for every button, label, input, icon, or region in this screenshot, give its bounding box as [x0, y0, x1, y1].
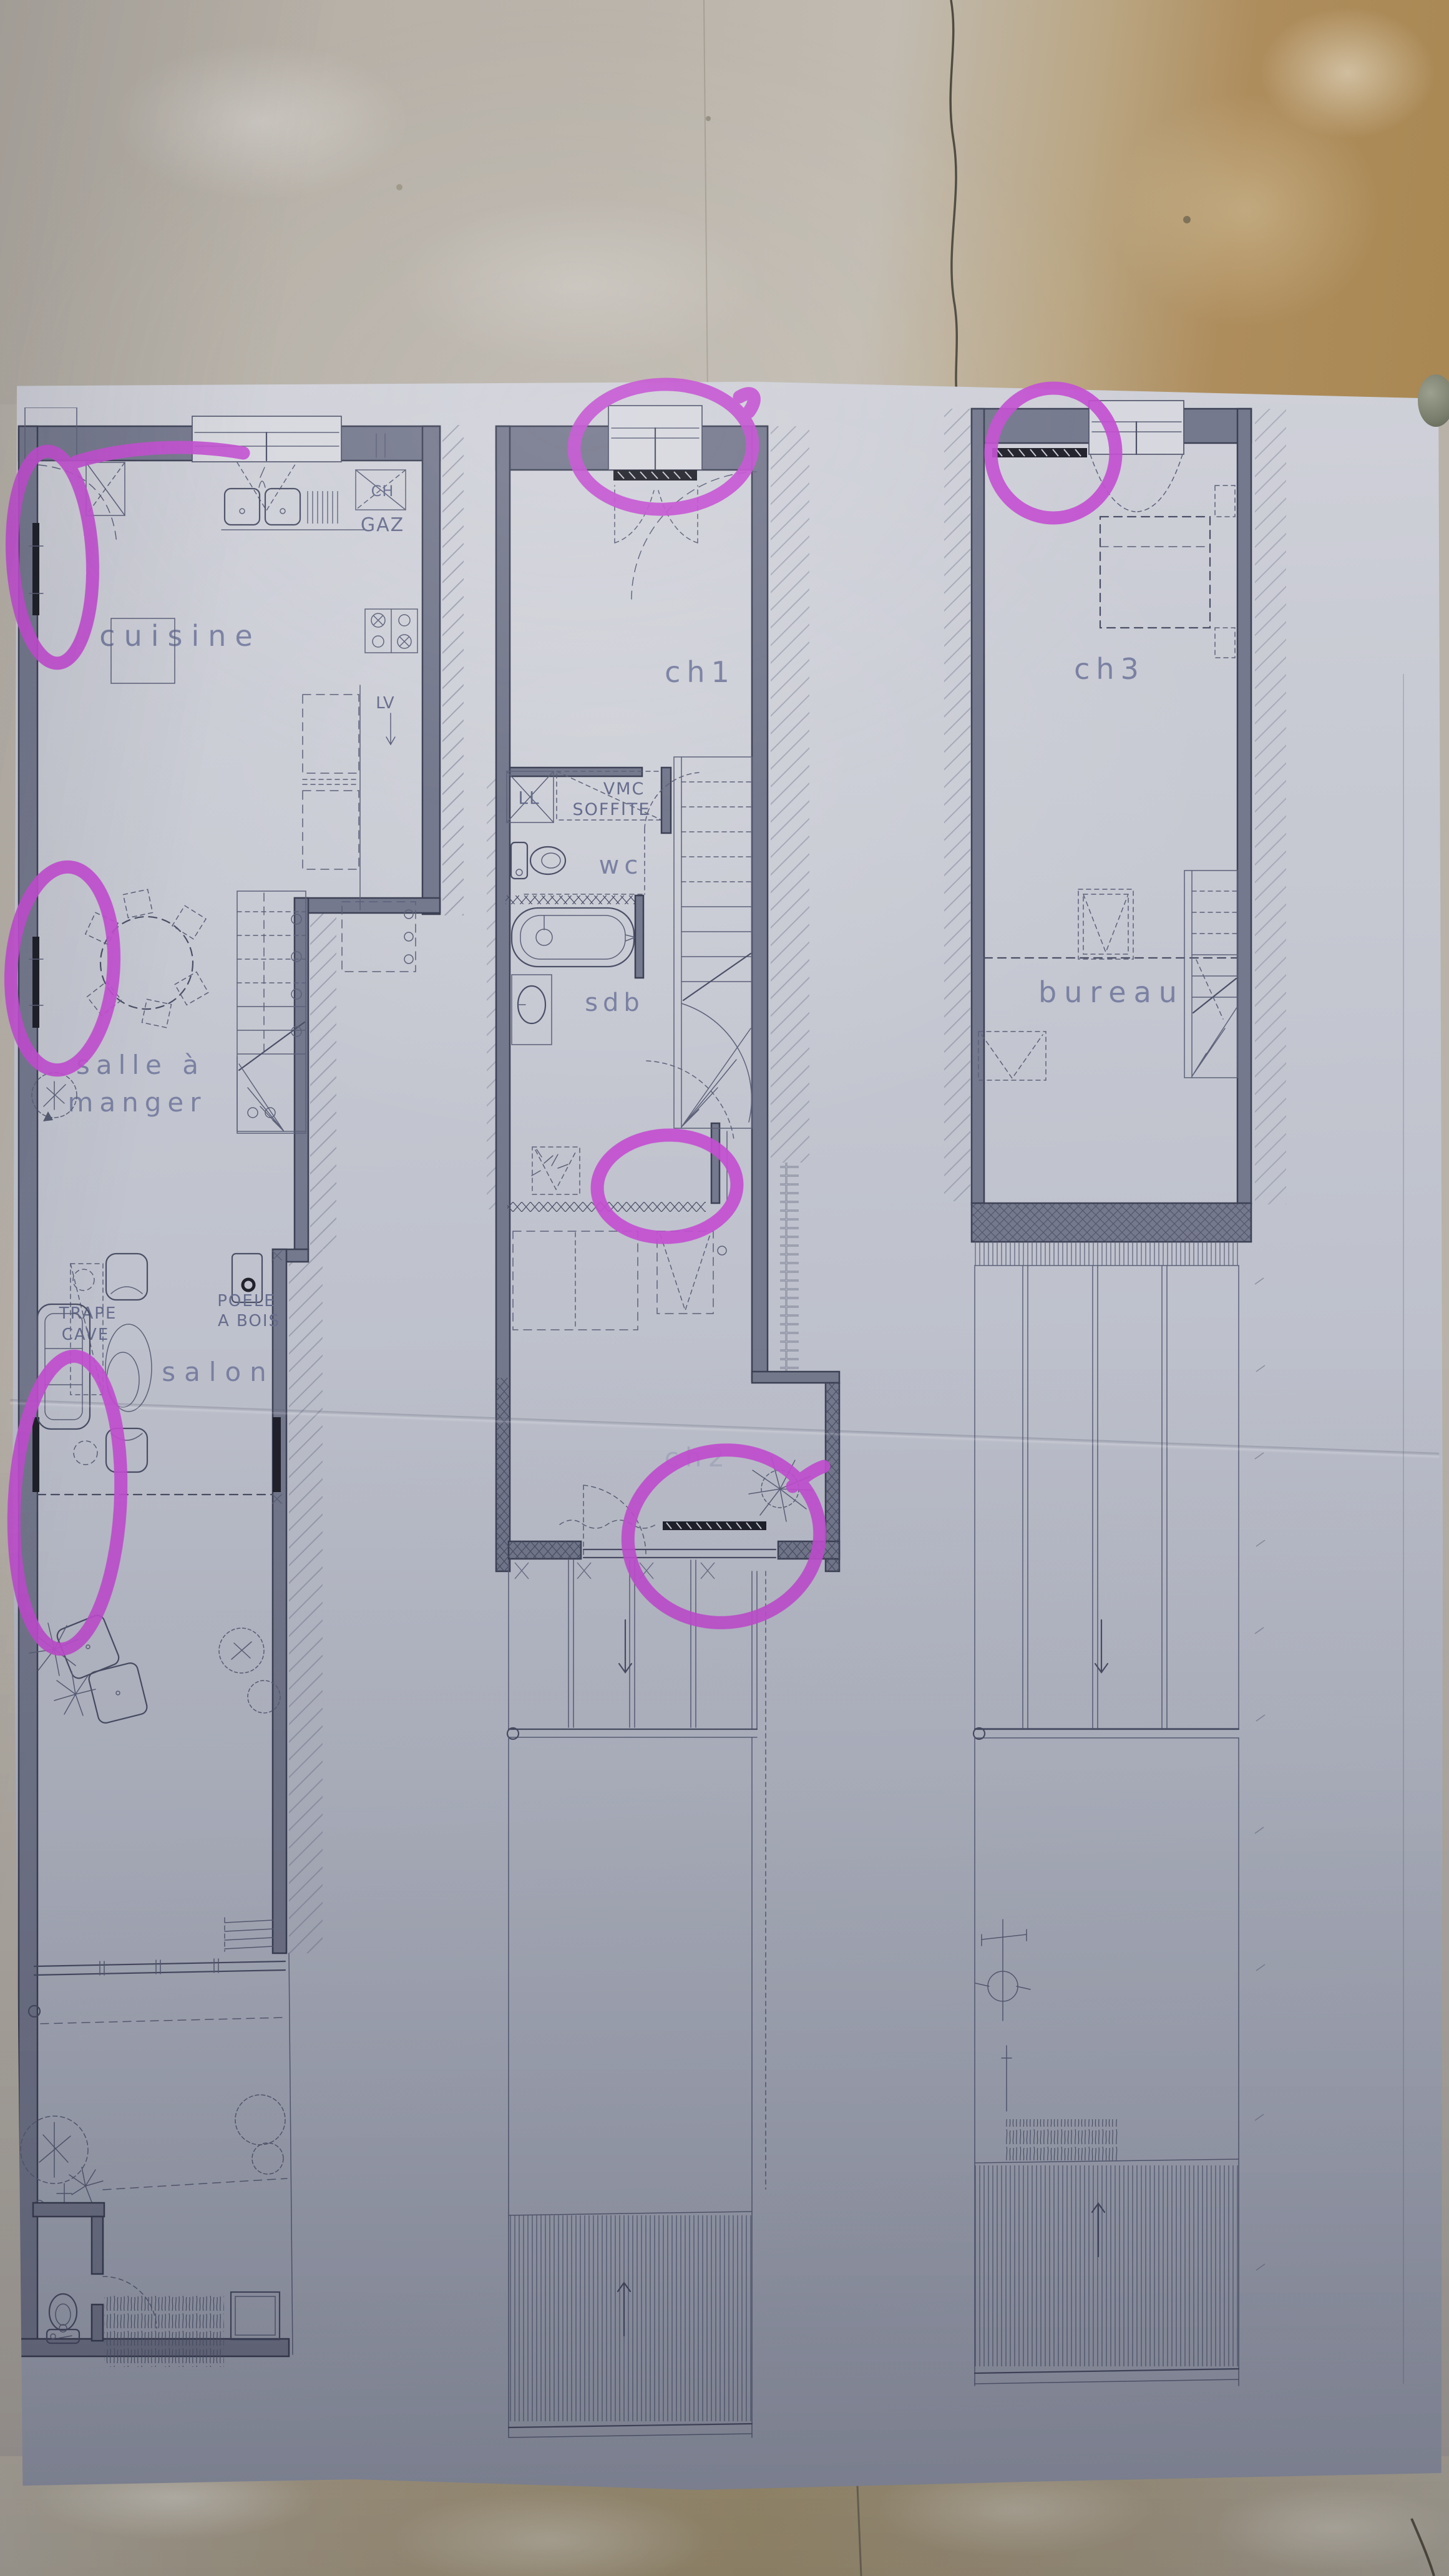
marker-circle-bedroom3-radiator	[991, 388, 1116, 518]
marker-circle-bedroom2-radiator	[617, 1438, 831, 1635]
marker-circle-living-sofa	[7, 1354, 128, 1652]
marker-tail-kitchen	[76, 447, 243, 462]
marker-circle-bathroom-wall	[595, 1131, 739, 1241]
marker-annotations	[0, 0, 1449, 2576]
photo-of-floor-plans: CH GAZ cuisine LV	[0, 0, 1449, 2576]
marker-circle-bedroom1-window	[572, 381, 755, 512]
marker-circle-kitchen-radiator	[7, 449, 98, 665]
marker-circle-dining-radiator	[4, 864, 120, 1074]
